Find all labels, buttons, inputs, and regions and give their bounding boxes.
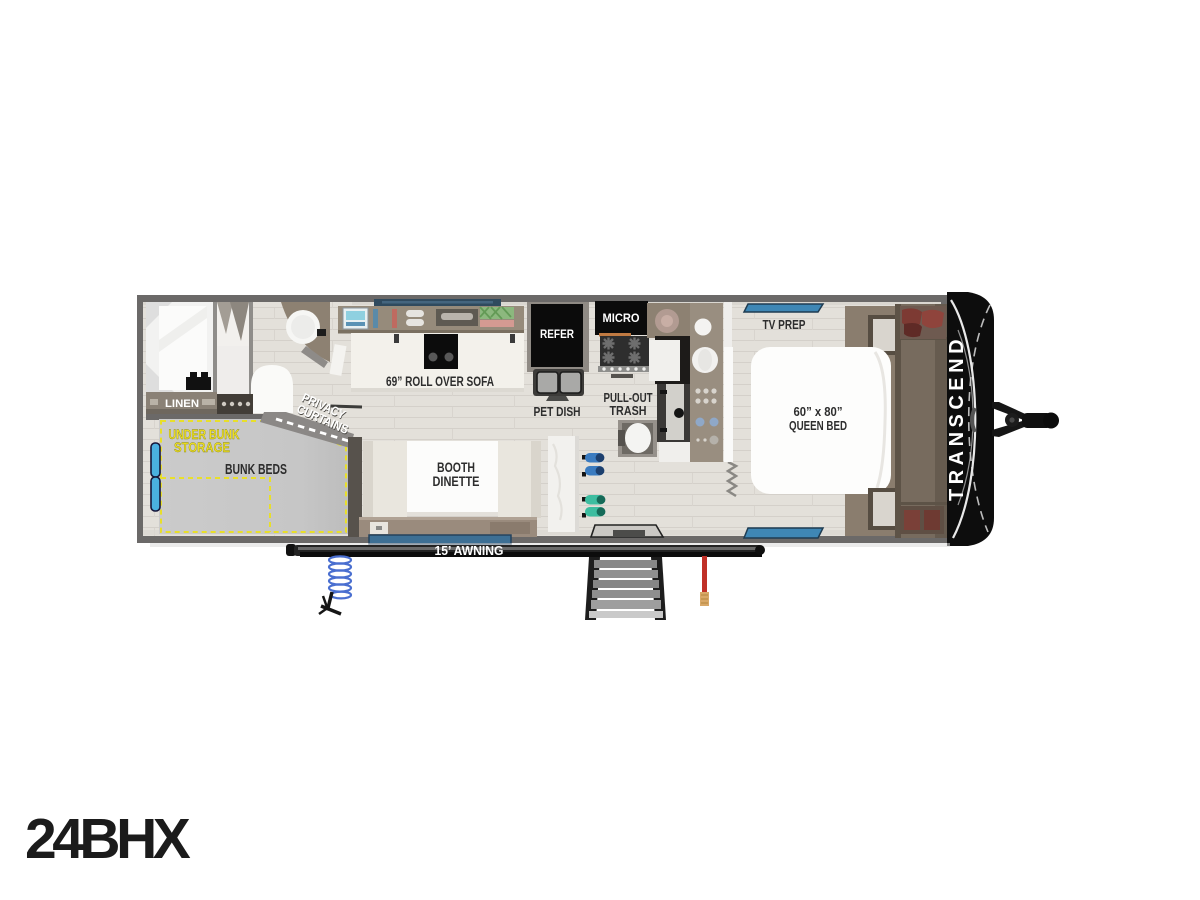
svg-text:TRASH: TRASH	[610, 403, 647, 418]
svg-text:MICRO: MICRO	[603, 311, 640, 325]
svg-text:TRANSCEND: TRANSCEND	[946, 335, 968, 501]
svg-text:REFER: REFER	[540, 327, 574, 341]
svg-text:BOOTH: BOOTH	[437, 460, 475, 475]
svg-text:DINETTE: DINETTE	[433, 474, 480, 489]
svg-text:15’ AWNING: 15’ AWNING	[435, 544, 504, 558]
svg-text:BUNK BEDS: BUNK BEDS	[225, 461, 287, 478]
svg-text:TV PREP: TV PREP	[763, 318, 806, 332]
svg-text:69” ROLL OVER SOFA: 69” ROLL OVER SOFA	[386, 374, 494, 389]
svg-text:24BHX: 24BHX	[25, 807, 191, 871]
svg-text:QUEEN BED: QUEEN BED	[789, 419, 847, 433]
svg-text:60” x 80”: 60” x 80”	[794, 405, 843, 419]
svg-text:PET DISH: PET DISH	[534, 404, 581, 419]
svg-text:STORAGE: STORAGE	[174, 439, 230, 455]
svg-text:LINEN: LINEN	[165, 398, 199, 410]
